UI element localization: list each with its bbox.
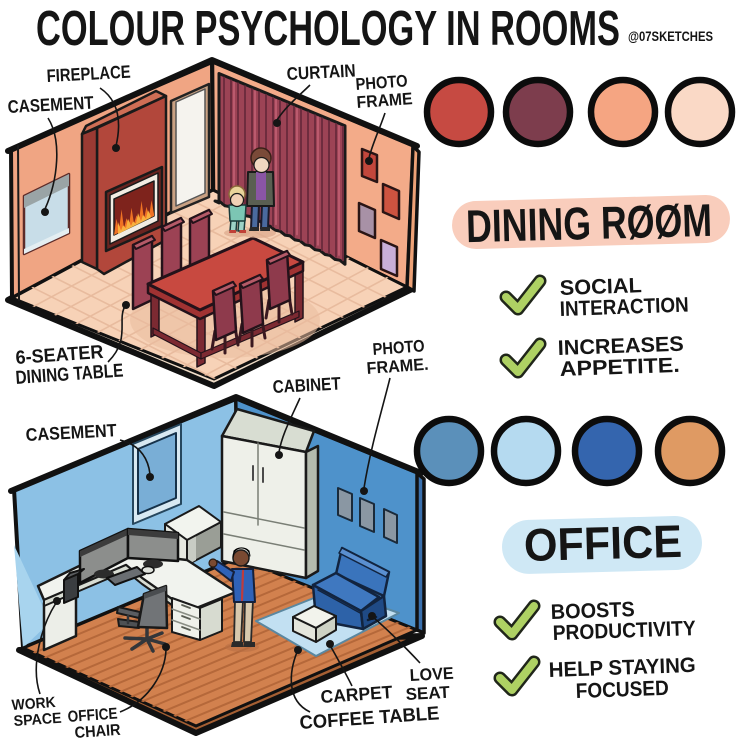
svg-text:SEAT: SEAT [405,683,451,704]
svg-text:FRAME: FRAME [356,89,413,112]
svg-text:CASEMENT: CASEMENT [7,93,94,117]
svg-text:LOVE: LOVE [409,664,454,685]
svg-text:COFFEE TABLE: COFFEE TABLE [299,703,440,734]
svg-text:APPETITE.: APPETITE. [559,354,680,381]
svg-text:OFFICE: OFFICE [523,515,682,571]
svg-text:CHAIR: CHAIR [74,722,121,742]
svg-text:CURTAIN: CURTAIN [286,60,356,84]
svg-text:SPACE: SPACE [13,710,62,730]
svg-text:FIREPLACE: FIREPLACE [46,62,131,86]
svg-text:FRAME.: FRAME. [366,355,429,378]
svg-text:DINING RØØM: DINING RØØM [465,194,712,252]
svg-text:COLOUR PSYCHOLOGY IN ROOMS: COLOUR PSYCHOLOGY IN ROOMS [36,2,620,56]
svg-text:INTERACTION: INTERACTION [559,294,689,321]
svg-text:CARPET: CARPET [320,682,393,707]
svg-text:CABINET: CABINET [272,373,341,397]
svg-text:CASEMENT: CASEMENT [25,420,117,445]
svg-text:FOCUSED: FOCUSED [575,677,669,703]
svg-text:PRODUCTIVITY: PRODUCTIVITY [552,617,696,645]
svg-text:@07SKETCHES: @07SKETCHES [628,28,713,44]
